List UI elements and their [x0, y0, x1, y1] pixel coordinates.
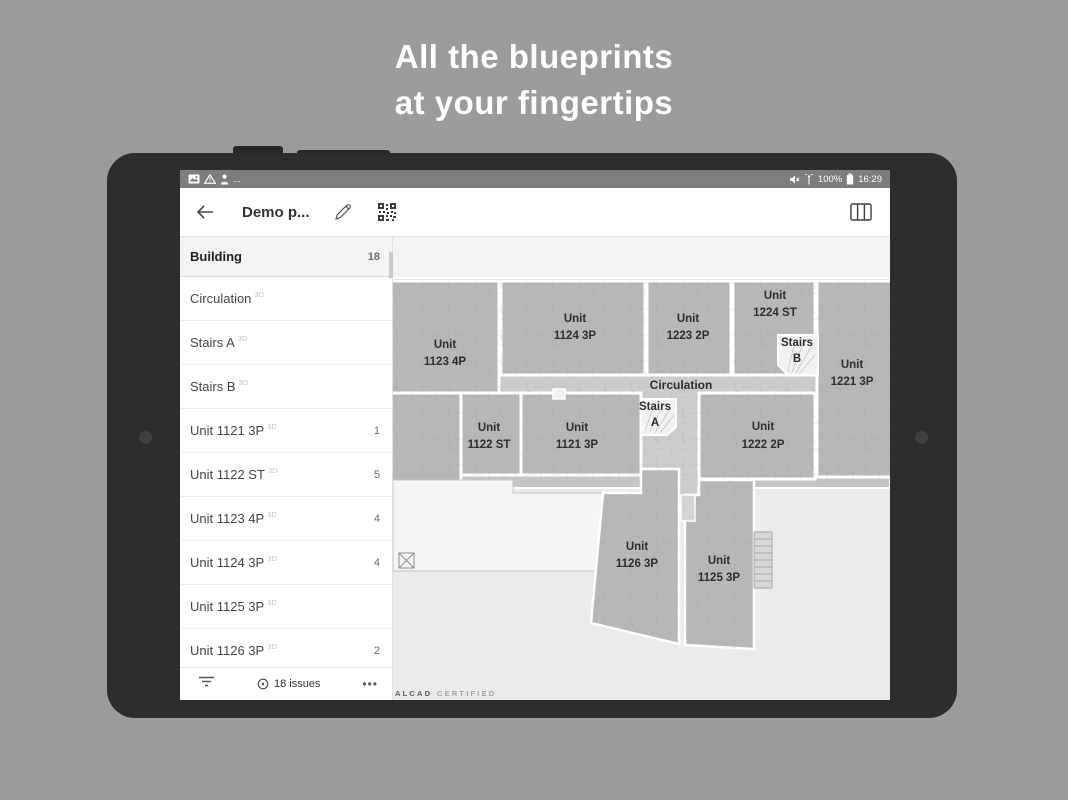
label-stairs-b-letter: B — [793, 353, 801, 365]
list-item-label: Circulation — [190, 291, 251, 306]
clock: 16:29 — [858, 174, 882, 185]
list-item-unit-1124[interactable]: Unit 1124 3P 3D 4 — [180, 541, 392, 585]
list-bottom-bar: 18 issues ••• — [180, 667, 393, 700]
label-unit-1224-num: 1224 ST — [753, 307, 796, 319]
label-unit-1126: Unit — [626, 541, 649, 553]
label-unit-1222-num: 1222 2P — [742, 439, 785, 451]
label-unit-1222: Unit — [752, 421, 775, 433]
signal-icon — [804, 174, 814, 185]
issue-count-badge: 1 — [374, 425, 380, 437]
issue-count-badge: 4 — [374, 513, 380, 525]
label-unit-1126-num: 1126 3P — [616, 558, 659, 570]
label-unit-1223-num: 1223 2P — [667, 330, 710, 342]
status-bar: ... 100% 16:29 — [180, 170, 890, 188]
filter-icon — [198, 676, 215, 688]
list-item-unit-1122[interactable]: Unit 1122 ST 3D 5 — [180, 453, 392, 497]
label-unit-1223: Unit — [677, 313, 700, 325]
entry-notch — [553, 389, 565, 399]
3d-tag: 3D — [267, 422, 277, 431]
wing-texture-1126 — [591, 469, 679, 644]
list-item-label: Building — [190, 249, 242, 264]
label-stairs-a-letter: A — [651, 417, 659, 429]
hero-title-line1: All the blueprints — [0, 34, 1068, 80]
list-item-label: Unit 1125 3P — [190, 599, 264, 614]
label-stairs-b: Stairs — [781, 337, 813, 349]
3d-tag: 3D — [268, 466, 278, 475]
list-item-label: Stairs A — [190, 335, 235, 350]
label-unit-1123-num: 1123 4P — [424, 356, 467, 368]
list-item-label: Unit 1121 3P — [190, 423, 264, 438]
list-item-unit-1121[interactable]: Unit 1121 3P 3D 1 — [180, 409, 392, 453]
label-unit-1121-num: 1121 3P — [556, 439, 599, 451]
status-ellipsis: ... — [233, 174, 241, 185]
issues-button[interactable]: 18 issues — [257, 678, 320, 690]
list-item-label: Unit 1124 3P — [190, 555, 264, 570]
no-access-icon — [399, 553, 414, 568]
watermark-brand: ALCAD — [395, 689, 432, 698]
list-item-stairs-a[interactable]: Stairs A 3D — [180, 321, 392, 365]
floorplan-canvas[interactable]: Unit 1123 4P Unit 1124 3P Unit 1223 2P U… — [393, 237, 890, 700]
label-unit-1125: Unit — [708, 555, 731, 567]
list-item-unit-1123[interactable]: Unit 1123 4P 3D 4 — [180, 497, 392, 541]
map-icon — [850, 203, 872, 221]
label-unit-1124: Unit — [564, 313, 587, 325]
person-icon — [220, 174, 229, 185]
label-unit-1121: Unit — [566, 422, 589, 434]
3d-tag: 3D — [239, 378, 249, 387]
label-stairs-a: Stairs — [639, 401, 671, 413]
label-unit-1221-num: 1221 3P — [831, 376, 874, 388]
issue-count-badge: 5 — [374, 469, 380, 481]
tablet-camera-left — [139, 431, 152, 444]
label-unit-1122: Unit — [478, 422, 501, 434]
app-bar: Demo p... — [180, 188, 890, 237]
layers-list: Building 18 Circulation 3D Stairs A 3D S… — [180, 237, 393, 667]
3d-tag: 3D — [254, 290, 264, 299]
list-item-stairs-b[interactable]: Stairs B 3D — [180, 365, 392, 409]
hero-title: All the blueprints at your fingertips — [0, 34, 1068, 126]
issue-count-badge: 2 — [374, 645, 380, 657]
battery-icon — [846, 173, 854, 185]
pencil-icon — [333, 202, 353, 222]
hero-title-line2: at your fingertips — [0, 80, 1068, 126]
map-view-button[interactable] — [844, 195, 878, 229]
3d-tag: 3D — [267, 554, 277, 563]
tablet-screen: ... 100% 16:29 Demo p — [180, 170, 890, 700]
qr-scan-button[interactable] — [370, 195, 404, 229]
watermark-suffix: CERTIFIED — [437, 689, 496, 698]
issues-icon — [257, 678, 269, 690]
list-item-circulation[interactable]: Circulation 3D — [180, 277, 392, 321]
edit-button[interactable] — [326, 195, 360, 229]
list-item-label: Unit 1126 3P — [190, 643, 264, 658]
terrace-area — [393, 480, 606, 571]
filter-button[interactable] — [180, 675, 215, 693]
label-unit-1221: Unit — [841, 359, 864, 371]
qr-code-icon — [378, 203, 396, 221]
list-item-building[interactable]: Building 18 — [180, 237, 392, 277]
list-item-unit-1125[interactable]: Unit 1125 3P 3D — [180, 585, 392, 629]
label-unit-1124-num: 1124 3P — [554, 330, 597, 342]
label-unit-1125-num: 1125 3P — [698, 572, 741, 584]
notification-image-icon — [188, 174, 200, 184]
label-unit-1224: Unit — [764, 290, 787, 302]
warning-icon — [204, 174, 216, 184]
tablet-camera-right — [915, 431, 928, 444]
mute-icon — [789, 174, 800, 185]
3d-tag: 3D — [267, 598, 277, 607]
list-item-label: Unit 1122 ST — [190, 467, 265, 482]
balcony-stairs — [754, 532, 772, 588]
3d-tag: 3D — [267, 642, 277, 651]
issues-count-label: 18 issues — [274, 678, 320, 690]
more-menu-button[interactable]: ••• — [362, 677, 392, 691]
label-unit-1123: Unit — [434, 339, 457, 351]
back-button[interactable] — [188, 195, 222, 229]
list-item-label: Stairs B — [190, 379, 236, 394]
back-arrow-icon — [196, 205, 214, 219]
project-title[interactable]: Demo p... — [242, 204, 310, 221]
3d-tag: 3D — [267, 510, 277, 519]
list-item-unit-1126[interactable]: Unit 1126 3P 3D 2 — [180, 629, 392, 667]
plan-sheet-top-strip — [393, 237, 890, 278]
label-unit-1122-num: 1122 ST — [468, 439, 511, 451]
battery-percentage: 100% — [818, 174, 842, 185]
3d-tag: 3D — [238, 334, 248, 343]
issue-count-badge: 4 — [374, 557, 380, 569]
issue-count-badge: 18 — [368, 251, 380, 263]
list-item-label: Unit 1123 4P — [190, 511, 264, 526]
label-circulation: Circulation — [650, 378, 713, 392]
